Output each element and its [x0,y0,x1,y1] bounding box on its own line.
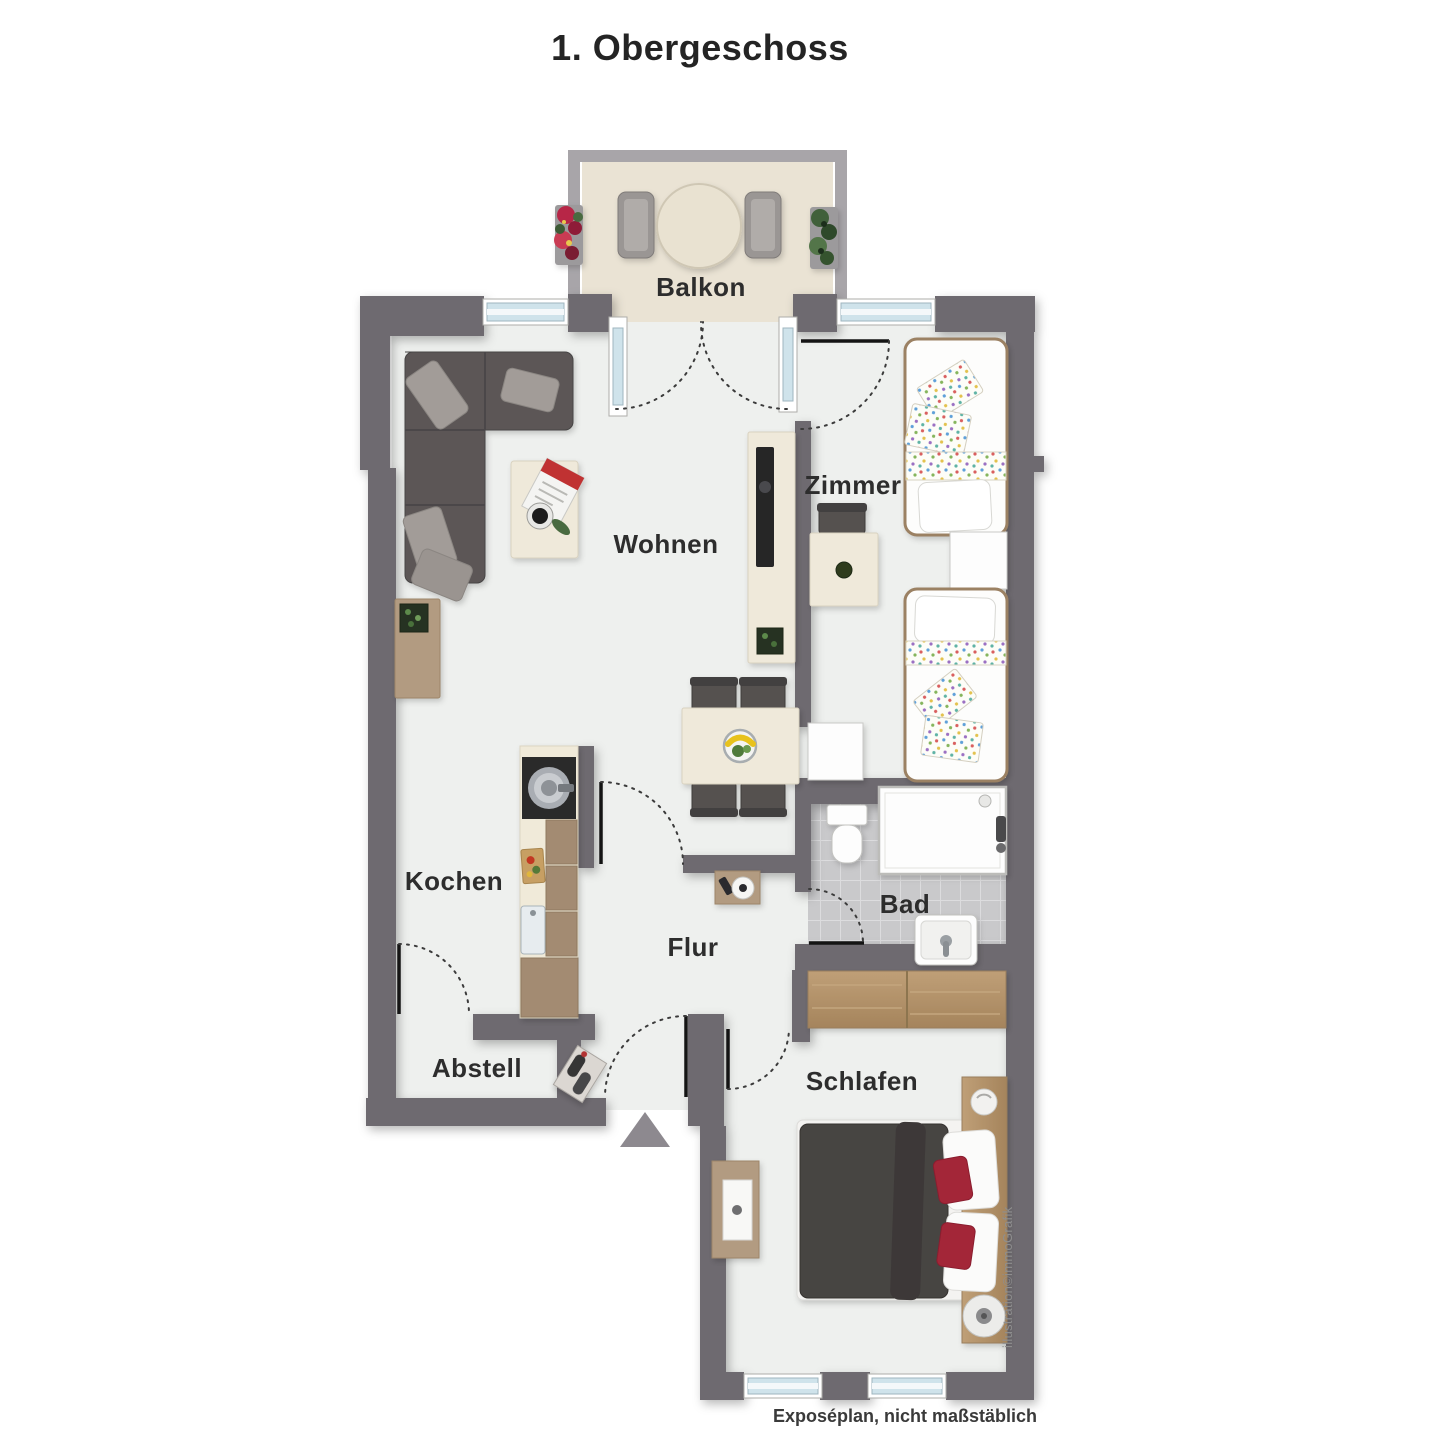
wall-segment [577,746,594,868]
floorplan-canvas: 1. Obergeschoss Balkon Wohnen Zimmer Koc… [0,0,1440,1440]
wall-segment [360,296,390,470]
room-label-bad: Bad [880,889,931,919]
coffee-table [511,458,584,558]
flower-box-left [554,205,583,265]
window-bedroom-left [744,1374,822,1398]
wall-segment [568,294,612,332]
fruit-bowl [724,730,756,762]
caption: Exposéplan, nicht maßstäblich [773,1406,1037,1426]
page-title: 1. Obergeschoss [551,27,849,68]
room-label-flur: Flur [667,932,718,962]
toilet [827,805,867,863]
window-zimmer-top [837,299,935,325]
wall-segment [1006,456,1044,472]
balcony-door-left-leaf [609,317,627,416]
sideboard-with-plant [395,599,440,698]
room-label-wohnen: Wohnen [613,529,718,559]
wall-segment [793,294,837,332]
room-label-abstell: Abstell [432,1053,522,1083]
balcony-chair-right [745,192,781,258]
dresser [712,1161,759,1258]
entrance-arrow [620,1112,670,1147]
balcony-door-right-leaf [779,317,797,412]
beds-cabinet [950,532,1007,589]
wall-segment [688,1014,724,1126]
flower-box-right [809,207,838,269]
wall-segment [368,468,396,1126]
desk [810,533,878,606]
bathroom-sink [915,915,977,965]
room-label-zimmer: Zimmer [805,470,902,500]
dining-chair [690,781,738,817]
window-bedroom-right [868,1374,946,1398]
dining-set [682,677,799,817]
single-bed-top [904,339,1007,535]
hall-shelf [715,871,760,904]
kitchen-sink [521,906,545,954]
bedside-lamp [971,1089,997,1115]
railing-segment [568,150,847,162]
wardrobe [808,971,1006,1028]
zimmer-nightstand [808,723,863,780]
dining-chair [739,781,787,817]
wall-segment [792,970,810,1042]
kitchen-cabinet-low [521,958,578,1017]
single-bed-bottom [905,589,1007,781]
wall-segment [683,855,797,873]
kitchen-counter [520,746,578,1018]
watermark: illustration©immoGrafik [1000,1206,1015,1348]
floorplan-page: 1. Obergeschoss Balkon Wohnen Zimmer Koc… [0,0,1440,1440]
room-label-schlafen: Schlafen [806,1066,918,1096]
wall-segment [700,1372,744,1400]
room-label-balkon: Balkon [656,272,746,302]
cutting-board [521,848,545,883]
room-label-kochen: Kochen [405,866,503,896]
tv-sideboard [748,432,795,663]
wall-segment [795,804,811,892]
balcony-round-table [657,184,741,268]
window-living-top [483,299,568,325]
wall-segment [820,1372,870,1400]
wall-segment [795,421,811,727]
wall-segment [366,1098,606,1126]
kitchen-cabinet [546,820,577,864]
stove [522,757,576,819]
balcony-chair-left [618,192,654,258]
kitchen-cabinet [546,912,577,956]
kitchen-cabinet [546,866,577,910]
shower [879,787,1006,874]
wall-segment [946,1372,1034,1400]
desk-chair [817,503,867,535]
